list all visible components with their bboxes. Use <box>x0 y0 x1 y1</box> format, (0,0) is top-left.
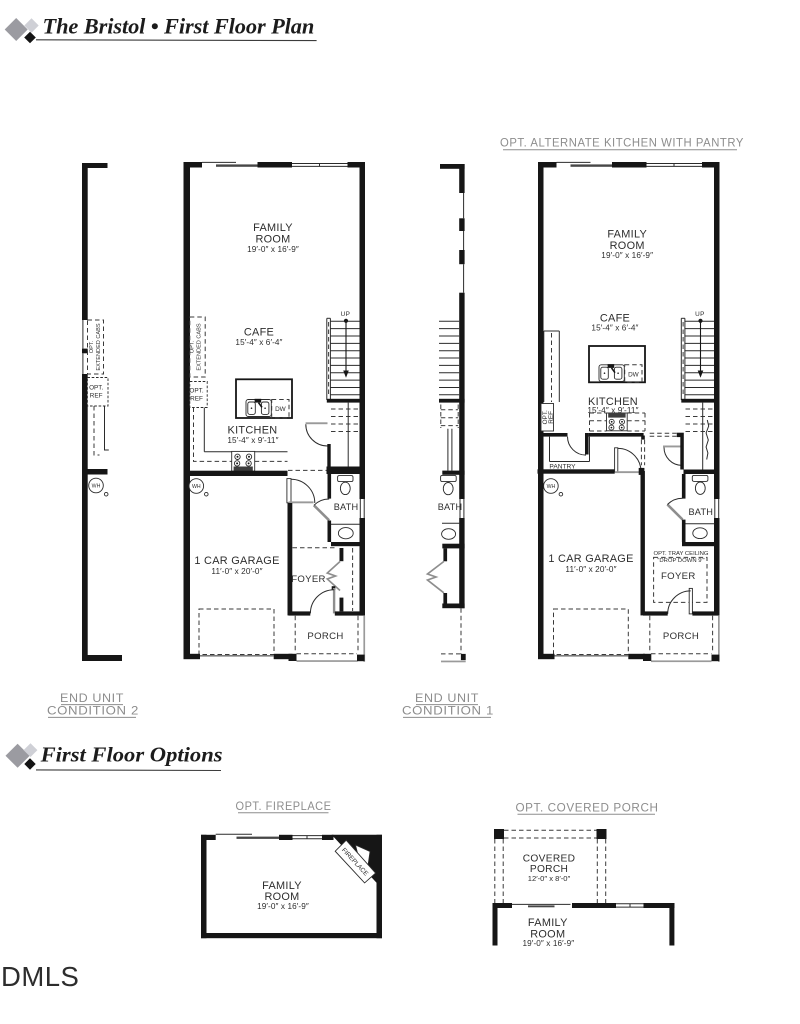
svg-text:1 CAR GARAGE: 1 CAR GARAGE <box>548 553 633 565</box>
svg-text:CONDITION 2: CONDITION 2 <box>47 704 139 718</box>
svg-text:EXTENDED CABS: EXTENDED CABS <box>197 323 203 371</box>
svg-text:OPT.: OPT. <box>189 388 203 395</box>
svg-text:CONDITION 1: CONDITION 1 <box>402 704 494 718</box>
svg-text:WH: WH <box>547 484 556 490</box>
svg-text:UP: UP <box>341 311 351 318</box>
svg-text:19′-0″ x 16′-9″: 19′-0″ x 16′-9″ <box>257 902 309 911</box>
svg-text:First Floor Options: First Floor Options <box>40 743 223 767</box>
svg-text:ROOM: ROOM <box>255 234 290 246</box>
svg-text:The Bristol • First Floor Plan: The Bristol • First Floor Plan <box>43 14 315 39</box>
svg-text:1 CAR GARAGE: 1 CAR GARAGE <box>194 555 279 567</box>
svg-text:CAFE: CAFE <box>244 327 274 339</box>
svg-text:DW: DW <box>628 371 640 378</box>
svg-text:KITCHEN: KITCHEN <box>228 425 278 437</box>
svg-text:REF: REF <box>548 411 555 424</box>
svg-text:OPT. ALTERNATE KITCHEN WITH PA: OPT. ALTERNATE KITCHEN WITH PANTRY <box>500 136 744 150</box>
svg-text:OPT. COVERED PORCH: OPT. COVERED PORCH <box>516 801 659 815</box>
svg-text:“DROP DOWN 9′”: “DROP DOWN 9′” <box>657 558 704 564</box>
svg-text:FAMILY: FAMILY <box>607 229 647 241</box>
svg-text:BATH: BATH <box>438 502 463 512</box>
svg-text:REF: REF <box>190 396 203 403</box>
svg-text:PORCH: PORCH <box>307 631 343 642</box>
svg-text:WH: WH <box>92 484 101 490</box>
svg-text:DW: DW <box>275 406 287 413</box>
svg-text:OPT.: OPT. <box>89 385 103 392</box>
svg-text:11′-0″ x 20′-0″: 11′-0″ x 20′-0″ <box>211 567 262 576</box>
svg-text:15′-4″ x 6′-4″: 15′-4″ x 6′-4″ <box>591 324 638 333</box>
svg-text:15′-4″ x 6′-4″: 15′-4″ x 6′-4″ <box>235 338 282 347</box>
svg-text:11′-0″ x 20′-0″: 11′-0″ x 20′-0″ <box>565 565 616 574</box>
svg-text:WH: WH <box>192 484 201 490</box>
svg-text:OPT. TRAY CEILING: OPT. TRAY CEILING <box>654 551 709 557</box>
svg-text:OPT.: OPT. <box>190 340 196 353</box>
svg-text:BATH: BATH <box>688 507 713 517</box>
svg-text:UP: UP <box>695 311 705 318</box>
svg-text:DMLS: DMLS <box>1 961 79 992</box>
svg-text:OPT.: OPT. <box>89 340 95 353</box>
svg-text:FAMILY: FAMILY <box>253 222 293 234</box>
svg-text:BATH: BATH <box>334 502 359 512</box>
svg-text:19′-0″ x 16′-9″: 19′-0″ x 16′-9″ <box>523 939 575 948</box>
svg-text:19′-0″ x 16′-9″: 19′-0″ x 16′-9″ <box>601 251 653 260</box>
svg-text:EXTENDED CABS: EXTENDED CABS <box>96 323 102 371</box>
svg-text:19′-0″ x 16′-9″: 19′-0″ x 16′-9″ <box>247 245 299 254</box>
svg-text:FAMILY: FAMILY <box>528 917 568 929</box>
svg-text:12′-0″ x 8′-0″: 12′-0″ x 8′-0″ <box>528 874 571 883</box>
svg-text:FAMILY: FAMILY <box>262 880 302 892</box>
svg-text:PORCH: PORCH <box>663 631 699 642</box>
svg-text:OPT. FIREPLACE: OPT. FIREPLACE <box>236 799 332 813</box>
svg-text:FOYER: FOYER <box>661 571 696 582</box>
svg-text:REF: REF <box>90 393 103 400</box>
svg-text:FOYER: FOYER <box>291 574 326 585</box>
svg-text:15′-4″ x 9′-11″: 15′-4″ x 9′-11″ <box>227 436 278 445</box>
